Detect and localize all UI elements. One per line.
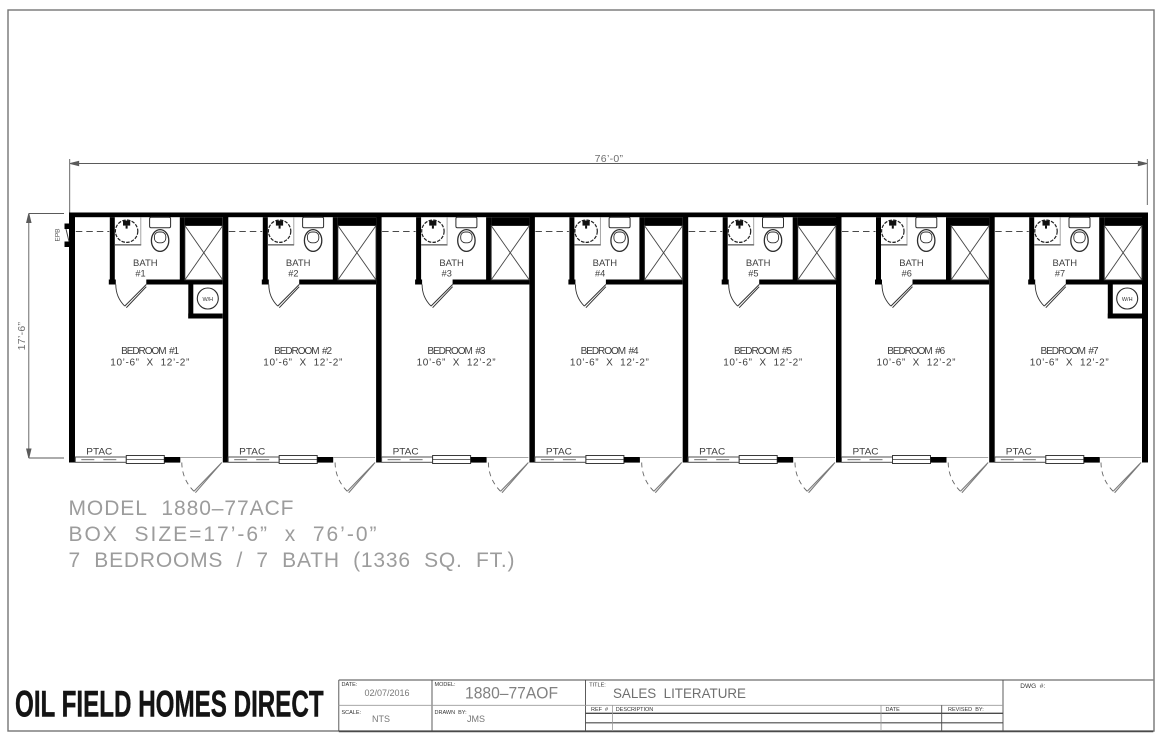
svg-text:02/07/2016: 02/07/2016 xyxy=(364,688,409,698)
svg-text:#5: #5 xyxy=(748,268,758,278)
svg-text:DATE: DATE xyxy=(886,707,901,713)
svg-text:7 BEDROOMS / 7 BATH (1336: 7 BEDROOMS / 7 BATH (1336 SQ. FT.) xyxy=(69,549,515,572)
svg-text:10’-6” X 12’-2”: 10’-6” X 12’-2” xyxy=(110,358,189,369)
svg-text:BEDROOM #6: BEDROOM #6 xyxy=(887,346,945,357)
svg-text:#6: #6 xyxy=(902,268,912,278)
svg-text:PTAC: PTAC xyxy=(86,447,112,457)
svg-text:#3: #3 xyxy=(442,268,452,278)
svg-text:BATH: BATH xyxy=(439,258,464,268)
svg-text:17’-6”: 17’-6” xyxy=(16,321,28,350)
svg-text:BATH: BATH xyxy=(899,258,924,268)
svg-text:BEDROOM #2: BEDROOM #2 xyxy=(274,346,332,357)
svg-text:#7: #7 xyxy=(1055,268,1065,278)
svg-text:10’-6” X 12’-2”: 10’-6” X 12’-2” xyxy=(1030,358,1109,369)
svg-text:BEDROOM #3: BEDROOM #3 xyxy=(427,346,485,357)
svg-text:BEDROOM #1: BEDROOM #1 xyxy=(121,346,179,357)
svg-text:NTS: NTS xyxy=(372,714,390,724)
svg-text:DESCRIPTION: DESCRIPTION xyxy=(616,707,654,713)
svg-text:76’-0”: 76’-0” xyxy=(595,153,624,165)
svg-text:BATH: BATH xyxy=(133,258,158,268)
svg-text:10’-6” X 12’-2”: 10’-6” X 12’-2” xyxy=(263,358,342,369)
svg-text:10’-6” X 12’-2”: 10’-6” X 12’-2” xyxy=(877,358,956,369)
svg-text:SALES LITERATURE: SALES LITERATURE xyxy=(613,685,746,701)
svg-text:SCALE:: SCALE: xyxy=(342,710,362,716)
svg-text:BEDROOM #5: BEDROOM #5 xyxy=(734,346,792,357)
svg-text:MODEL:: MODEL: xyxy=(435,682,457,688)
svg-text:PTAC: PTAC xyxy=(699,447,725,457)
svg-text:TITLE:: TITLE: xyxy=(589,682,606,688)
svg-text:BATH: BATH xyxy=(1053,258,1078,268)
svg-text:DRAWN BY:: DRAWN BY: xyxy=(435,710,468,716)
svg-text:PTAC: PTAC xyxy=(1006,447,1032,457)
svg-text:REF #: REF # xyxy=(591,707,609,713)
svg-text:OIL FIELD HOMES DIRECT: OIL FIELD HOMES DIRECT xyxy=(15,683,324,724)
svg-text:DWG #:: DWG #: xyxy=(1020,683,1045,690)
svg-text:BEDROOM #7: BEDROOM #7 xyxy=(1041,346,1099,357)
svg-text:DATE:: DATE: xyxy=(342,682,358,688)
svg-text:BEDROOM #4: BEDROOM #4 xyxy=(581,346,639,357)
svg-text:1880–77AOF: 1880–77AOF xyxy=(465,684,558,702)
svg-text:10’-6” X 12’-2”: 10’-6” X 12’-2” xyxy=(570,358,649,369)
svg-text:BATH: BATH xyxy=(286,258,311,268)
svg-text:BATH: BATH xyxy=(746,258,771,268)
svg-text:W/H: W/H xyxy=(1122,297,1133,303)
svg-text:MODEL 1880–77ACF: MODEL 1880–77ACF xyxy=(69,497,294,520)
svg-text:PTAC: PTAC xyxy=(546,447,572,457)
svg-text:W/H: W/H xyxy=(202,297,213,303)
svg-text:#4: #4 xyxy=(595,268,605,278)
svg-text:PTAC: PTAC xyxy=(393,447,419,457)
svg-text:10’-6” X 12’-2”: 10’-6” X 12’-2” xyxy=(723,358,802,369)
svg-text:PTAC: PTAC xyxy=(853,447,879,457)
svg-text:REVISED BY:: REVISED BY: xyxy=(948,707,984,713)
svg-text:EPB: EPB xyxy=(55,228,62,241)
svg-text:10’-6” X 12’-2”: 10’-6” X 12’-2” xyxy=(417,358,496,369)
svg-text:#1: #1 xyxy=(135,268,145,278)
svg-text:PTAC: PTAC xyxy=(239,447,265,457)
svg-text:BATH: BATH xyxy=(593,258,618,268)
svg-text:JMS: JMS xyxy=(467,714,485,724)
svg-text:#2: #2 xyxy=(288,268,298,278)
svg-text:BOX SIZE=17’-6” x 76’-0”: BOX SIZE=17’-6” x 76’-0” xyxy=(69,523,377,546)
